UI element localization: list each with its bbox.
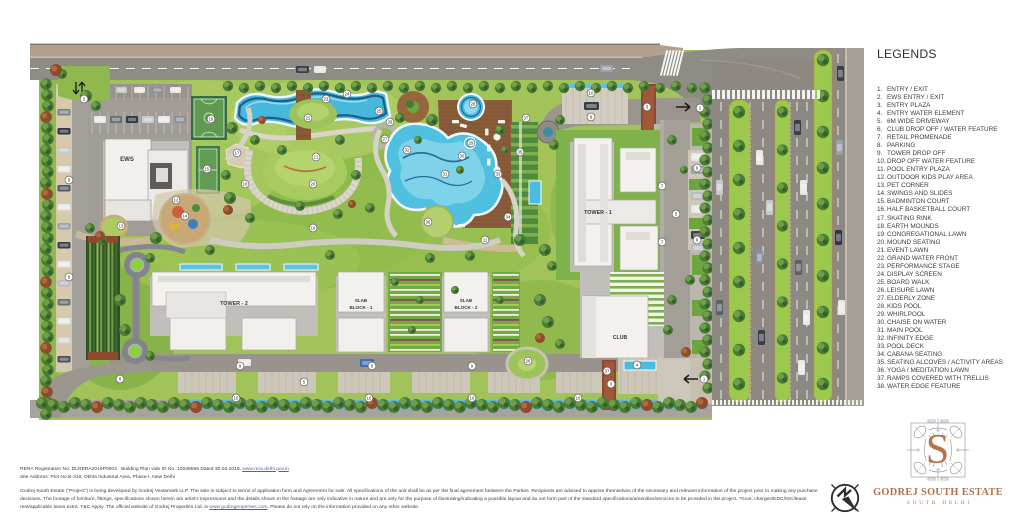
svg-text:11: 11 [483, 238, 488, 243]
svg-text:26: 26 [388, 120, 393, 125]
svg-text:22: 22 [306, 116, 311, 121]
svg-text:23: 23 [324, 97, 329, 102]
svg-text:20: 20 [311, 182, 316, 187]
svg-text:32: 32 [405, 148, 410, 153]
svg-text:37: 37 [605, 369, 610, 374]
svg-text:30: 30 [460, 154, 465, 159]
svg-text:TOWER - 1: TOWER - 1 [584, 210, 612, 216]
svg-text:SLAB: SLAB [460, 298, 473, 303]
svg-text:29: 29 [469, 141, 474, 146]
svg-text:10: 10 [576, 396, 581, 401]
svg-text:28: 28 [471, 102, 476, 107]
svg-text:17: 17 [235, 151, 240, 156]
svg-text:10: 10 [367, 396, 372, 401]
svg-text:16: 16 [209, 117, 214, 122]
svg-text:S: S [926, 427, 949, 473]
svg-text:34: 34 [506, 215, 511, 220]
svg-text:TOWER - 2: TOWER - 2 [220, 301, 248, 307]
svg-text:10: 10 [470, 396, 475, 401]
svg-text:25: 25 [377, 109, 382, 114]
svg-text:18: 18 [243, 182, 248, 187]
svg-text:SLAB: SLAB [355, 298, 368, 303]
svg-text:10: 10 [589, 91, 594, 96]
svg-text:BLOCK - 2: BLOCK - 2 [455, 305, 478, 310]
svg-text:15: 15 [205, 167, 210, 172]
svg-text:13: 13 [119, 224, 124, 229]
svg-text:EWS: EWS [120, 157, 134, 163]
svg-text:14: 14 [183, 214, 188, 219]
svg-text:33: 33 [496, 172, 501, 177]
svg-text:27: 27 [383, 137, 388, 142]
svg-text:31: 31 [443, 172, 448, 177]
svg-text:35: 35 [518, 150, 523, 155]
svg-text:26: 26 [526, 359, 531, 364]
svg-text:12: 12 [174, 198, 179, 203]
svg-text:19: 19 [311, 226, 316, 231]
svg-text:37: 37 [524, 116, 529, 121]
svg-text:10: 10 [234, 396, 239, 401]
svg-text:36: 36 [426, 220, 431, 225]
svg-text:21: 21 [314, 155, 319, 160]
svg-text:24: 24 [345, 92, 350, 97]
svg-text:CLUB: CLUB [613, 335, 628, 341]
svg-text:BLOCK - 1: BLOCK - 1 [350, 305, 373, 310]
